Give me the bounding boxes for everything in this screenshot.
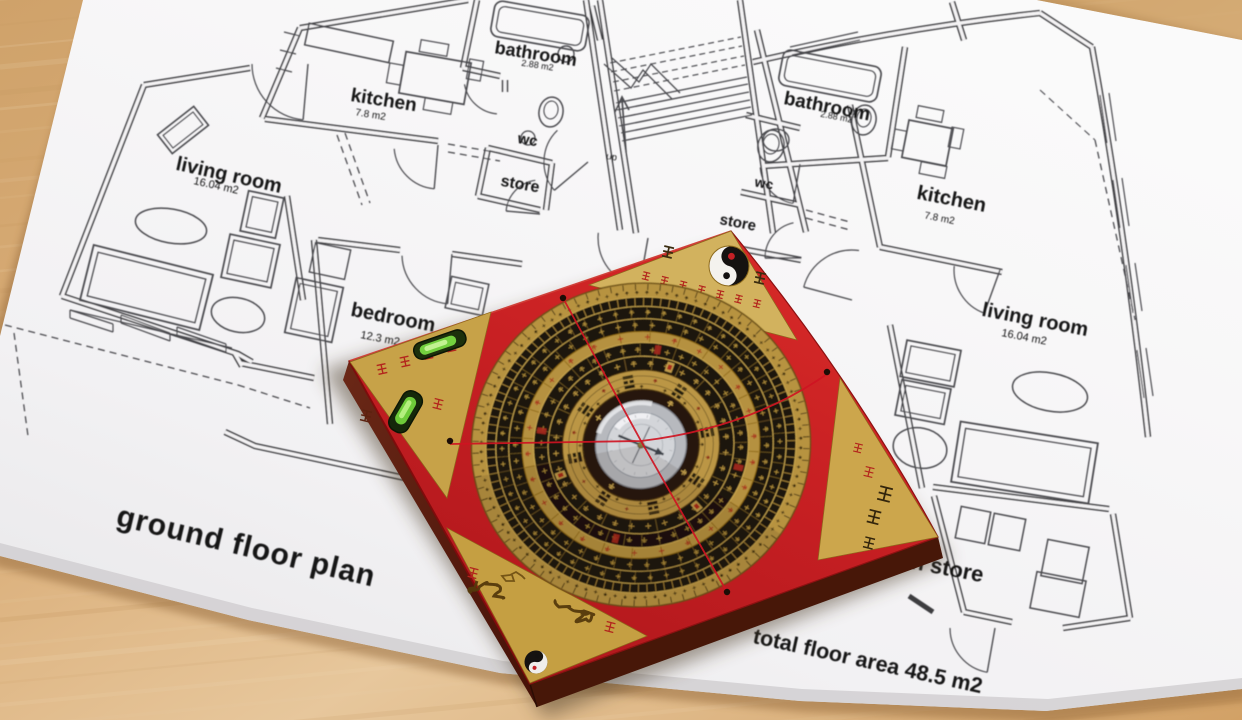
svg-text:up: up xyxy=(605,151,617,164)
svg-text:wc: wc xyxy=(515,130,539,150)
